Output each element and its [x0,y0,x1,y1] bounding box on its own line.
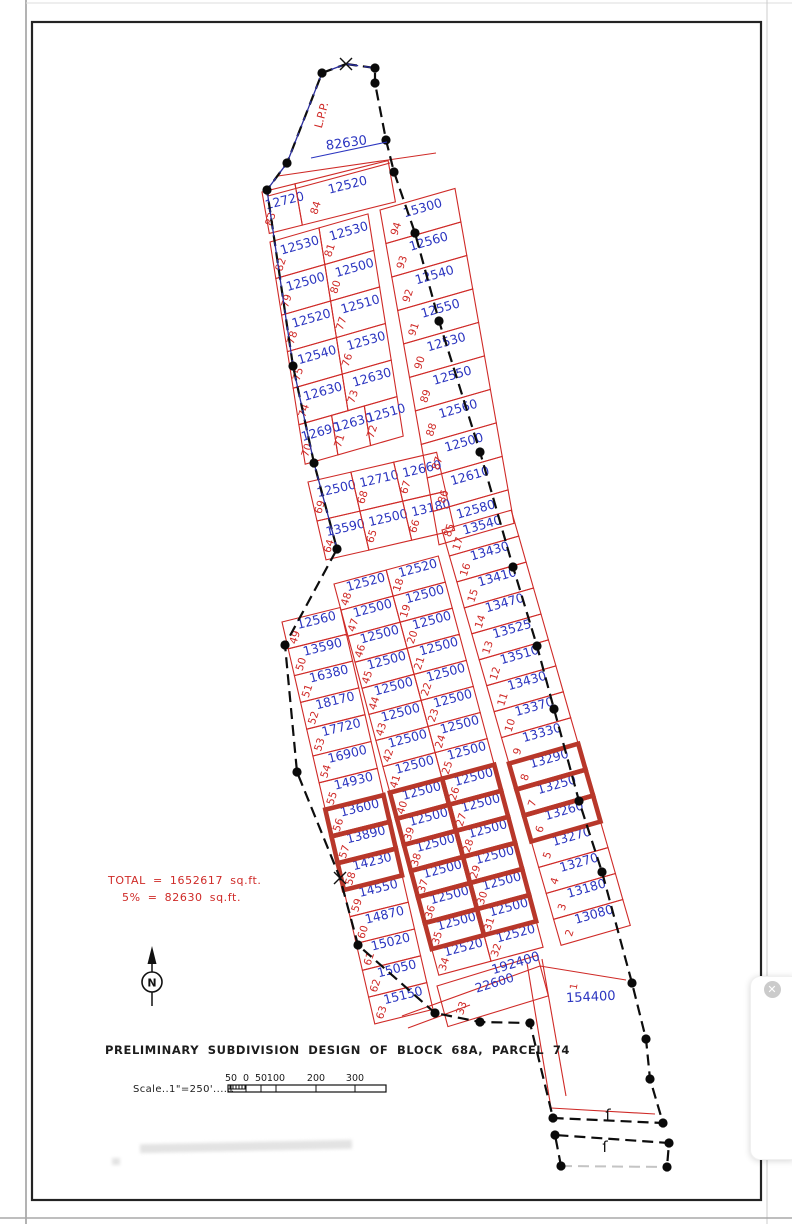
row-quad [555,1135,669,1167]
survey-point-dot [410,228,419,237]
lot-number-label: 9 [511,746,524,756]
lot-area-label: 15050 [376,956,418,980]
lot-number-label: 62 [368,978,384,994]
lot-area-label: 12500 [403,581,445,606]
sheet-title: PRELIMINARY SUBDIVISION DESIGN OF BLOCK … [105,1043,570,1057]
survey-point-dot [556,1161,565,1170]
lot-number-label: 80 [328,279,344,295]
lot-number-label: 12 [488,665,504,681]
survey-point-dot [550,1130,559,1139]
close-icon: ✕ [767,983,776,996]
side-overlay-panel: ✕ [750,976,792,1160]
survey-point-dot [641,1034,650,1043]
lot-area-label: 12530 [278,232,320,257]
scale-label: Scale..1"=250'...... [133,1084,235,1095]
survey-point-dot [434,316,443,325]
lot-area-label: 12500 [367,506,409,530]
road-edge-line [540,966,626,980]
north-arrow: N [142,946,162,1006]
survey-point-dot [627,978,636,987]
survey-point-dot [389,167,398,176]
lot-area-label: 12500 [431,686,473,711]
lot-number-label: 4 [548,876,562,886]
lot-number-label: 59 [349,897,365,913]
total-area-line2: 5% = 82630 sq.ft. [122,891,241,904]
lot-area-label: 12500 [365,648,407,673]
survey-point-dot [430,1008,439,1017]
lot-number-label: 32 [489,942,505,958]
lot-area-label: 12500 [351,595,393,620]
lot-number-label: 71 [332,433,348,449]
lot-number-label: 55 [325,790,341,806]
lot-number-label: 88 [424,422,440,438]
lot-number-label: 91 [406,321,422,337]
lot-number-label: 82 [273,256,289,272]
lot-area-label: 12520 [290,305,332,330]
lot-area-label: 15300 [401,195,443,220]
survey-point-dot [548,1113,557,1122]
lot-area-label: 12500 [424,660,466,685]
survey-point-dot [662,1162,671,1171]
lot-number-label: 60 [355,924,371,940]
survey-point-dot [549,704,558,713]
lot-area-label: 12560 [437,396,479,421]
lot-area-label: 15020 [369,929,411,953]
lot-area-label: 15150 [382,983,424,1007]
lot-number-label: 11 [495,691,511,707]
lot-number-label: 50 [294,656,310,672]
lot-area-label: 16380 [308,661,350,685]
lot-area-label: 13270 [558,849,600,874]
lot-area-label: 12710 [358,467,400,491]
match-line-symbol: ſ [602,1138,608,1156]
lot-area-label: 12540 [413,262,455,287]
survey-point-dot [292,767,301,776]
lot-number-label: 7 [526,798,539,808]
lot-number-label: 2 [563,928,576,938]
lot-area-label: 12500 [358,622,400,647]
lot-number-label: 49 [287,629,303,645]
lot-number-label: 61 [362,951,378,967]
road-edge-line [278,153,436,176]
lot-number-label: 8 [519,772,532,782]
lot-number-label: 76 [340,352,356,369]
survey-point-dot [309,458,318,467]
lot-number-label: 56 [331,817,347,834]
lot-area-label: 12550 [431,362,473,387]
lot-number-label: 5 [541,850,554,860]
road-edge-line [551,1108,655,1114]
survey-point-dot [664,1138,673,1147]
lot-number-label: 84 [308,199,324,216]
lot-area-label: 12560 [295,608,337,632]
lot-area-label: 18170 [314,688,356,712]
survey-point-dot [282,158,291,167]
remainder-area-label: 154400 [566,989,616,1007]
lot-area-label: 12520 [326,172,368,196]
survey-point-dot [532,641,541,650]
scale-bar-number: 300 [346,1073,364,1084]
lot-number-label: 92 [400,288,416,304]
survey-point-dot [475,1017,484,1026]
lot-number-label: 90 [412,355,428,371]
lot-area-label: 14930 [332,769,374,793]
lot-number-label: 15 [465,587,481,603]
lot-area-label: 12530 [345,328,387,353]
scale-bar-number: 200 [307,1073,325,1084]
lot-area-label: 16900 [326,742,368,766]
lot-area-label: 12530 [327,218,369,243]
lot-area-label: 12520 [396,555,438,580]
lot-number-label: 63 [374,1004,390,1020]
lot-number-label: 65 [364,528,380,544]
survey-point-dot [645,1074,654,1083]
lot-area-label: 13330 [520,720,562,745]
lot-area-label: 13180 [565,875,607,900]
lot-number-label: 89 [418,388,434,404]
lot-area-label: 12540 [296,342,338,367]
lot-area-label: 12500 [284,269,326,294]
lot-number-label: 81 [322,242,338,258]
lot-area-label: 12630 [351,364,393,389]
lot-number-label: 16 [458,561,474,578]
overlay-close-button[interactable]: ✕ [764,981,781,998]
lot-number-label: 94 [389,220,405,237]
lot-number-label: 73 [345,388,361,404]
plat-drawing: 1272083125208412530821253081125007912500… [0,0,792,1224]
survey-point-dot [370,63,379,72]
lot-area-label: 13525 [491,616,533,641]
survey-point-dot [574,796,583,805]
lot-area-label: 12500 [379,700,421,725]
survey-point-dot [288,361,297,370]
survey-point-dot [280,640,289,649]
survey-point-dot [332,544,341,553]
lot-area-label: 13430 [506,668,548,693]
survey-point-dot [317,68,326,77]
scale-bar: 50050100200300 [225,1073,386,1092]
lot-cell [295,161,395,226]
lot-area-label: 12520 [344,569,386,594]
parcel-boundary [267,64,663,1123]
lot-area-label: 12500 [333,255,375,280]
scale-bar-number: 50 [225,1073,237,1084]
lot-number-label: 33 [454,1000,470,1016]
lot-number-label: 66 [407,518,423,535]
survey-point-dot [658,1118,667,1127]
survey-point-dot [262,185,271,194]
plat-sheet: 1272083125208412530821253081125007912500… [0,0,792,1224]
survey-point-dot [475,447,484,456]
lot-area-label: 13470 [483,590,525,615]
lot-area-label: 13080 [573,901,615,926]
total-area-line1: TOTAL = 1652617 sq.ft. [107,874,262,887]
lot-number-label: 13 [480,639,496,655]
lot-number-label: 53 [312,736,328,752]
lot-area-label: 13370 [513,694,555,719]
lot-area-label: 12630 [301,378,343,403]
lot-area-label: 12500 [445,738,487,763]
road-edge-line [527,963,551,1108]
road-edge-line [402,966,540,1016]
lot-number-label: 6 [534,824,548,834]
lot-number-label: 52 [306,710,322,726]
row-quad-faded-edge [561,1166,667,1167]
survey-point-dot [525,1018,534,1027]
lot-number-label: 57 [337,844,353,860]
lot-number-label: 77 [334,315,350,331]
lot-number-label: 93 [395,254,411,270]
remainder-lot-number: 1 [569,982,581,990]
lot-number-label: 67 [398,479,414,495]
lot-area-label: 13590 [301,635,343,659]
lot-number-label: 68 [355,489,371,505]
lot-number-label: 10 [503,717,519,733]
lot-area-label: 12500 [372,674,414,699]
lot-number-label: 3 [556,902,569,912]
lot-area-label: 12500 [386,726,428,751]
north-letter: N [147,977,156,990]
lot-number-label: 72 [365,423,381,439]
lot-area-label: 12500 [438,712,480,737]
scale-bar-number: 50 [255,1073,267,1084]
lot-area-label: 12500 [393,752,435,777]
survey-point-dot [370,78,379,87]
lot-area-label: 14870 [363,903,405,927]
scale-bar-body [228,1085,386,1092]
lot-number-label: 51 [300,683,316,699]
survey-point-dot [597,867,606,876]
lot-area-label: 12500 [410,608,452,633]
lot-number-label: 87 [430,455,446,471]
faded-artifact [112,1158,120,1165]
drawing-border [32,22,761,1200]
lot-area-label: 12510 [339,291,381,316]
scale-bar-number: 0 [243,1073,249,1084]
lot-area-label: 13430 [468,538,510,563]
scale-bar-number: 100 [267,1073,285,1084]
survey-point-dot [353,940,362,949]
lot-area-label: 12500 [417,634,459,659]
survey-point-dot [508,562,517,571]
lpp-label: L.P.P. [312,101,331,130]
lot-number-label: 54 [318,763,334,780]
lot-area-label: 17720 [320,715,362,739]
lot-number-label: 78 [285,329,301,345]
lot-number-label: 14 [473,613,489,630]
